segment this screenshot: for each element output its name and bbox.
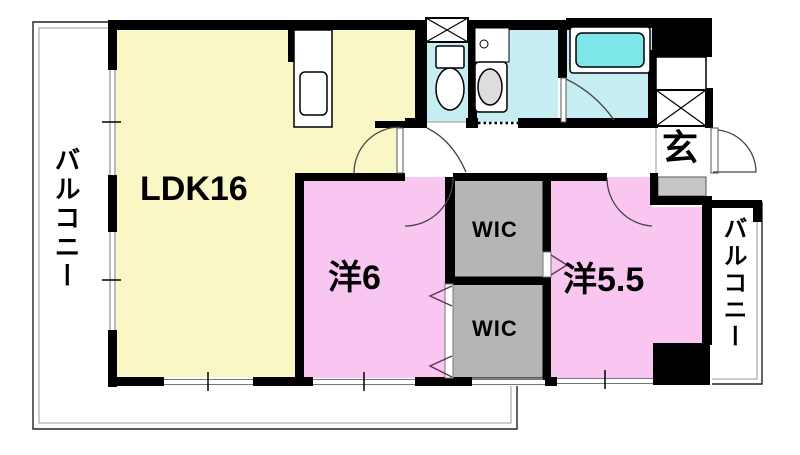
entrance-door-arc [713,130,756,172]
label-western-55: 洋5.5 [563,263,644,297]
shoe-cabinet [658,177,706,196]
label-ldk: LDK16 [140,172,248,206]
floor-plan-drawing [0,0,800,455]
kitchen-sink [300,72,327,115]
floor-plan: LDK16 洋6 洋5.5 WIC WIC 玄 バルコニー バルコニー [0,0,800,455]
toilet-fixture [436,46,464,110]
label-genkan: 玄 [662,130,698,166]
label-wic-upper: WIC [472,219,518,241]
toilet-door-arc [427,128,466,172]
void-box [656,57,706,90]
bath-door-leaf [561,78,566,122]
ldk-door-leaf [397,128,403,173]
label-balcony-left: バルコニー [53,146,79,291]
label-wic-lower: WIC [472,318,518,340]
label-balcony-right: バルコニー [720,216,744,351]
bathtub [570,27,650,73]
washbasin [475,28,509,112]
label-western-6: 洋6 [328,261,381,295]
entrance-door-leaf [711,128,718,173]
kitchen-counter [294,30,332,127]
